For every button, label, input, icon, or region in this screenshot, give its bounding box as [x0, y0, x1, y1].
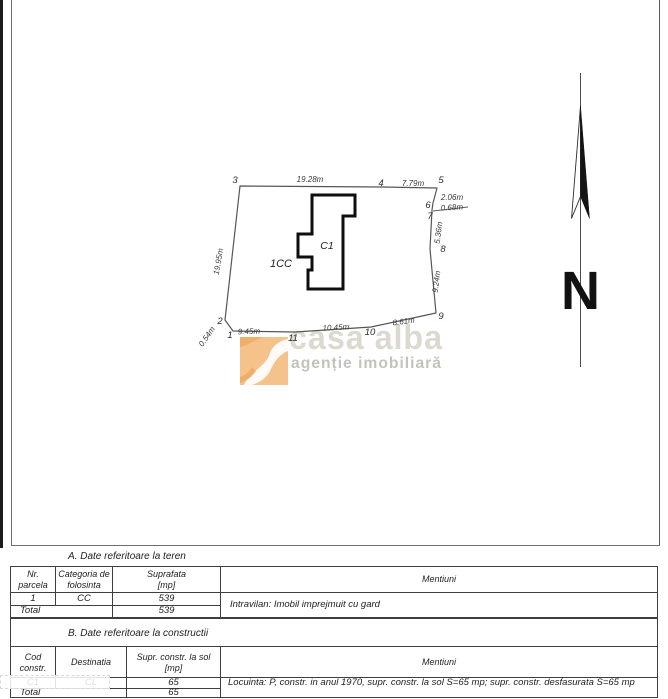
table-b-total-value: 65 [127, 689, 220, 698]
table-b-top-rule [11, 646, 657, 647]
table-a-total-label: Total [20, 606, 110, 617]
plan-svg: C11CC123456789101119.28m7.79m2.06m0.68m5… [0, 0, 668, 560]
table-a-header-nr-parcela: Nr. parcela [11, 567, 55, 592]
edge-length-label: 0.68m [441, 202, 464, 212]
vertex-number-label: 11 [288, 333, 298, 344]
table-b-header-destinatia: Destinatia [56, 648, 126, 677]
edge-length-label: 10.45m [322, 322, 349, 332]
building-label: C1 [320, 240, 333, 252]
cadastral-plan-page: casa alba agenție imobiliară C11CC123456… [0, 0, 668, 699]
section-b-title: B. Date referitoare la constructii [68, 628, 208, 639]
table-a-total-value: 539 [113, 606, 220, 617]
edge-length-label: 19.28m [297, 175, 324, 184]
table-b-header-mentiuni: Mentiuni [221, 648, 657, 677]
edge-length-label: 5.36m [433, 221, 445, 244]
edge-length-label: 2.06m [440, 193, 464, 202]
table-b-cell-mentiuni: Locuinta: P, constr. in anul 1970, supr.… [228, 678, 653, 688]
vertex-number-label: 6 [425, 200, 431, 211]
section-a-title: A. Date referitoare la teren [68, 551, 186, 562]
parcel-label: 1CC [270, 258, 292, 270]
vertex-number-label: 5 [438, 175, 444, 186]
table-a-cell-nr: 1 [11, 593, 55, 605]
vertex-number-label: 7 [427, 211, 433, 222]
table-a-cell-mentiuni: Intravilan: Imobil imprejmuit cu gard [230, 593, 650, 617]
table-b-total-label: Total [20, 689, 120, 698]
edge-length-label: 9.45m [238, 327, 261, 337]
vertex-number-label: 9 [438, 311, 444, 322]
edge-length-label: 7.79m [402, 179, 425, 188]
north-arrow-head-left [572, 106, 581, 219]
table-a-cell-categoria: CC [56, 593, 112, 605]
vertex-number-label: 3 [232, 175, 238, 186]
vertex-number-label: 8 [440, 244, 446, 255]
north-label: N [561, 261, 600, 321]
vertex-number-label: 2 [216, 316, 223, 327]
table-a-cell-suprafata: 539 [113, 593, 220, 605]
table-a-header-suprafata: Suprafata [mp] [113, 567, 220, 592]
edge-length-label: 19.95m [212, 247, 226, 275]
vertex-number-label: 10 [365, 327, 376, 338]
north-arrow-head-right [581, 106, 590, 219]
edge-length-label: 9.24m [431, 270, 443, 293]
scan-white-patch [0, 675, 110, 689]
vertex-number-label: 4 [378, 178, 383, 189]
table-a-header-mentiuni: Mentiuni [221, 567, 657, 592]
table-b-header-cod: Cod constr. [11, 648, 55, 677]
table-a-header-categoria: Categoria de folosinta [56, 567, 112, 592]
edge-length-label: 0.54m [197, 325, 217, 349]
vertex-number-label: 1 [227, 330, 232, 341]
edge-length-label: 8.61m [392, 315, 416, 327]
table-b-header-supr-constr: Supr. constr. la sol [mp] [127, 648, 220, 677]
